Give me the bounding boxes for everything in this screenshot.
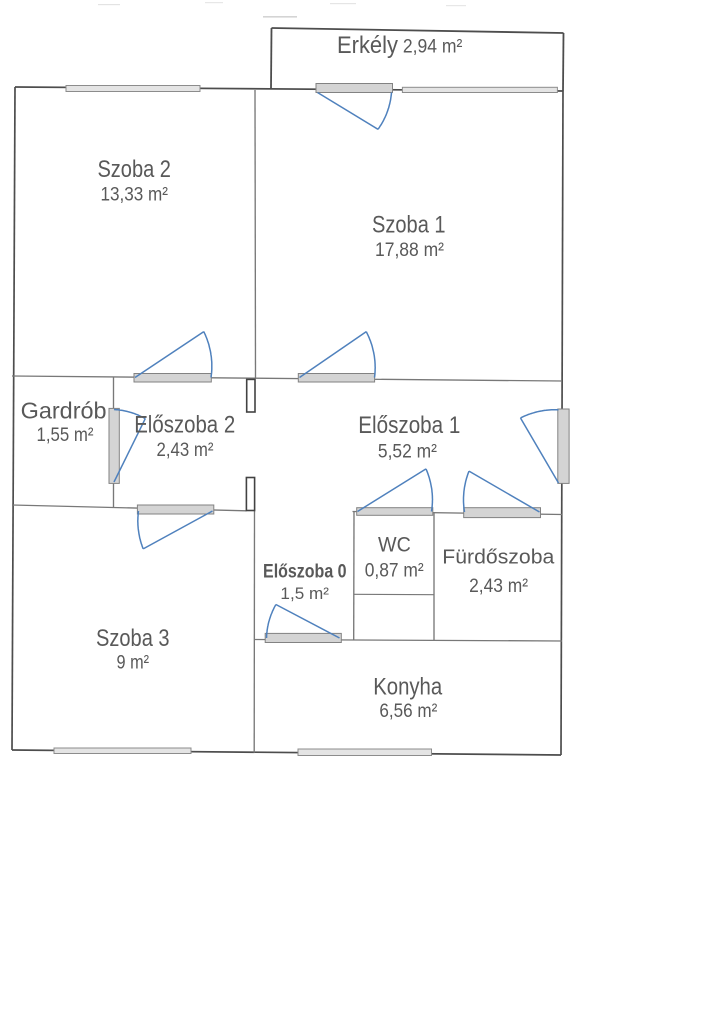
svg-text:9 m²: 9 m²	[117, 653, 150, 674]
svg-text:2,94 m²: 2,94 m²	[403, 37, 463, 58]
svg-text:2,43 m²: 2,43 m²	[469, 576, 528, 597]
svg-text:17,88 m²: 17,88 m²	[375, 240, 444, 261]
svg-text:Előszoba 2: Előszoba 2	[134, 412, 235, 439]
svg-text:Szoba 2: Szoba 2	[97, 156, 171, 183]
svg-text:Előszoba 0: Előszoba 0	[263, 562, 347, 583]
svg-text:Szoba 3: Szoba 3	[96, 625, 170, 652]
svg-text:Szoba 1: Szoba 1	[372, 212, 446, 239]
svg-text:5,52 m²: 5,52 m²	[378, 442, 437, 463]
svg-text:Előszoba 1: Előszoba 1	[358, 412, 460, 439]
svg-text:Erkély: Erkély	[337, 32, 398, 59]
svg-text:13,33 m²: 13,33 m²	[100, 185, 168, 206]
svg-text:6,56 m²: 6,56 m²	[379, 701, 437, 722]
svg-text:1,5 m²: 1,5 m²	[280, 584, 329, 603]
svg-text:Konyha: Konyha	[373, 674, 443, 701]
svg-text:Fürdőszoba: Fürdőszoba	[442, 547, 555, 569]
svg-text:2,43 m²: 2,43 m²	[157, 440, 214, 461]
svg-text:Gardrób: Gardrób	[21, 398, 107, 424]
svg-text:0,87 m²: 0,87 m²	[365, 561, 424, 582]
svg-text:WC: WC	[378, 534, 411, 557]
svg-text:1,55 m²: 1,55 m²	[37, 425, 94, 446]
